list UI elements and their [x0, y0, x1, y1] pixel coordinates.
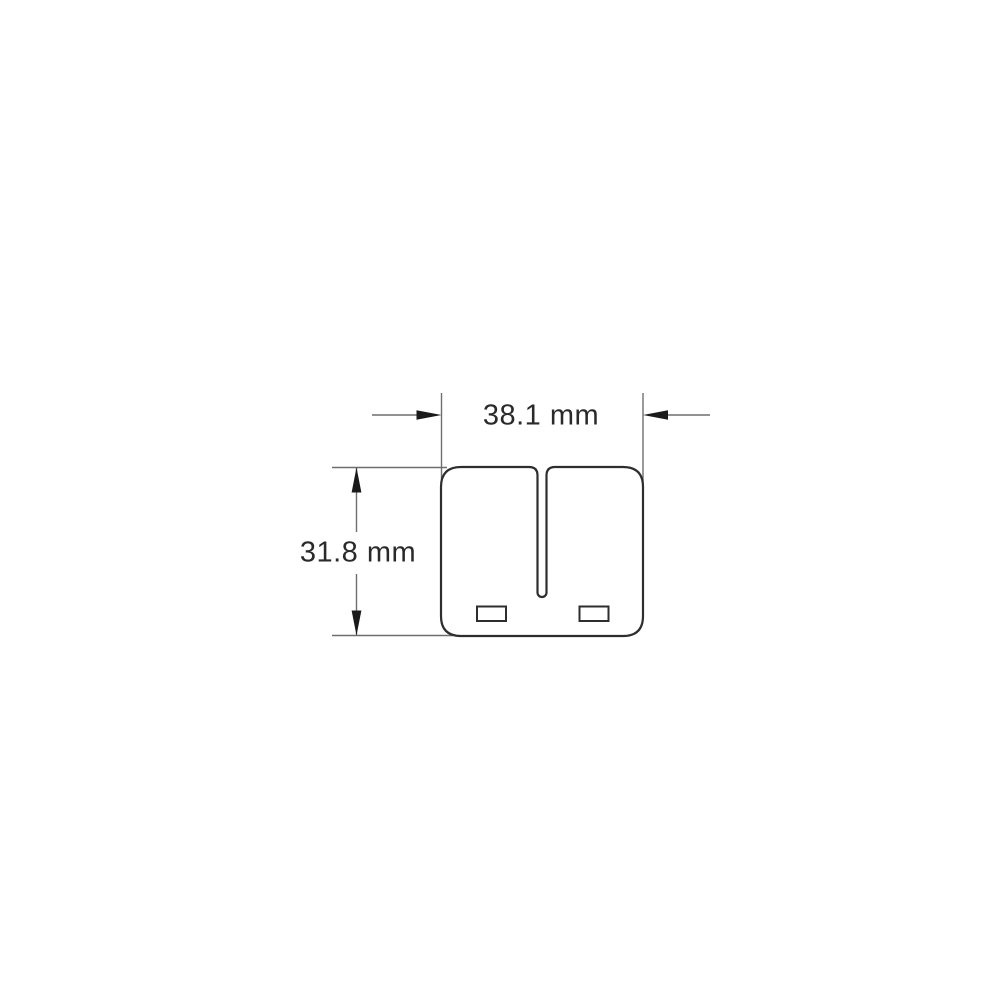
height-arrowhead-top: [352, 468, 362, 493]
height-dimension-label: 31.8 mm: [295, 539, 421, 568]
left-slot-window: [477, 607, 506, 622]
height-arrowhead-bottom: [352, 611, 362, 636]
right-slot-window: [580, 607, 609, 622]
width-arrowhead-right: [643, 410, 668, 420]
reed-petal-outline: [441, 467, 643, 636]
width-dimension-label: 38.1 mm: [478, 402, 604, 431]
dimension-drawing-svg: [0, 0, 1000, 1000]
drawing-canvas: 38.1 mm 31.8 mm: [0, 0, 1000, 1000]
width-arrowhead-left: [417, 410, 442, 420]
